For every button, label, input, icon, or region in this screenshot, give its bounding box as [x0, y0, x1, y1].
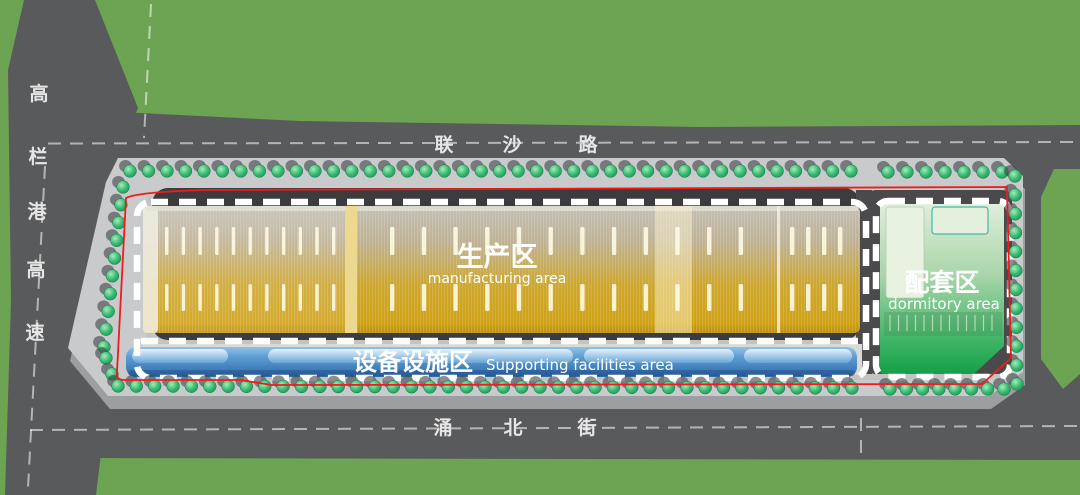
site-plan-canvas: 联 沙 路 涌 北 街 高 栏 港 高 速 生产区 manufacturing …	[0, 0, 1080, 495]
skylight-mark	[165, 284, 168, 311]
dormitory-rooftop-unit	[932, 207, 988, 234]
building-left-facade	[143, 206, 158, 333]
skylight-mark	[390, 284, 394, 311]
skylight-mark	[644, 284, 648, 311]
skylight-mark	[675, 227, 679, 255]
skylight-mark	[265, 284, 268, 311]
road-left-char-2: 栏	[28, 145, 47, 168]
road-left-char-5: 速	[25, 321, 44, 344]
skylight-mark	[790, 284, 794, 311]
skylight-mark	[198, 227, 201, 255]
skylight-mark	[580, 227, 584, 255]
skylight-mark	[838, 227, 842, 255]
skylight-mark	[739, 227, 743, 255]
skylight-mark	[790, 227, 794, 255]
skylight-mark	[182, 227, 185, 255]
skylight-mark	[282, 284, 285, 311]
manufacturing-zone-label-en: manufacturing area	[428, 271, 567, 287]
grass-island	[1041, 169, 1080, 389]
skylight-mark	[422, 284, 426, 311]
skylight-mark	[332, 284, 335, 311]
skylight-mark	[580, 284, 584, 311]
skylight-mark	[215, 284, 218, 311]
road-bottom-char-2: 北	[503, 417, 522, 439]
skylight-mark	[332, 227, 335, 255]
dormitory-parking-band	[884, 312, 1002, 336]
skylight-mark	[612, 284, 616, 311]
skylight-mark	[549, 284, 553, 311]
road-left-char-4: 高	[26, 258, 45, 281]
skylight-mark	[315, 284, 318, 311]
skylight-mark	[806, 227, 810, 255]
supporting-zone-label-zh: 设备设施区	[353, 348, 473, 376]
skylight-mark	[299, 284, 302, 311]
road-left-char-1: 高	[29, 82, 48, 105]
skylight-mark	[390, 227, 394, 255]
building-pale-bay	[655, 206, 692, 333]
dormitory-zone-label-zh: 配套区	[904, 268, 979, 297]
skylight-mark	[485, 284, 489, 311]
road-top-char-2: 沙	[502, 134, 521, 156]
skylight-mark	[707, 284, 711, 311]
skylight-mark	[315, 227, 318, 255]
road-bottom-char-1: 涌	[433, 417, 452, 439]
skylight-mark	[707, 227, 711, 255]
skylight-mark	[838, 284, 842, 311]
skylight-mark	[299, 227, 302, 255]
skylight-mark	[644, 227, 648, 255]
skylight-mark	[806, 284, 810, 311]
skylight-mark	[249, 227, 252, 255]
dormitory-zone-label-en: dormitory area	[888, 295, 1000, 313]
skylight-mark	[517, 284, 521, 311]
skylight-mark	[739, 284, 743, 311]
skylight-mark	[215, 227, 218, 255]
road-left-char-3: 港	[27, 201, 47, 223]
skylight-mark	[232, 284, 235, 311]
site-plan-image: 联 沙 路 涌 北 街 高 栏 港 高 速 生产区 manufacturing …	[0, 0, 1080, 495]
manufacturing-zone-label-zh: 生产区	[457, 242, 538, 273]
building-section-left-tint	[158, 206, 345, 333]
skylight-mark	[612, 227, 616, 255]
skylight-mark	[453, 284, 457, 311]
skylight-mark	[249, 284, 252, 311]
skylight-mark	[822, 284, 826, 311]
road-top-char-1: 联	[434, 134, 453, 156]
building-divider-strip	[345, 206, 357, 333]
skylight-mark	[549, 227, 553, 255]
supporting-zone-label-en: Supporting facilities area	[486, 356, 674, 374]
skylight-mark	[422, 227, 426, 255]
skylight-mark	[282, 227, 285, 255]
road-top-char-3: 路	[578, 133, 598, 156]
skylight-mark	[232, 227, 235, 255]
skylight-mark	[822, 227, 826, 255]
skylight-mark	[265, 227, 268, 255]
road-bottom-char-3: 街	[576, 416, 596, 439]
skylight-mark	[198, 284, 201, 311]
skylight-mark	[675, 284, 679, 311]
skylight-mark	[182, 284, 185, 311]
skylight-mark	[165, 227, 168, 255]
building-divider-line	[777, 206, 780, 333]
